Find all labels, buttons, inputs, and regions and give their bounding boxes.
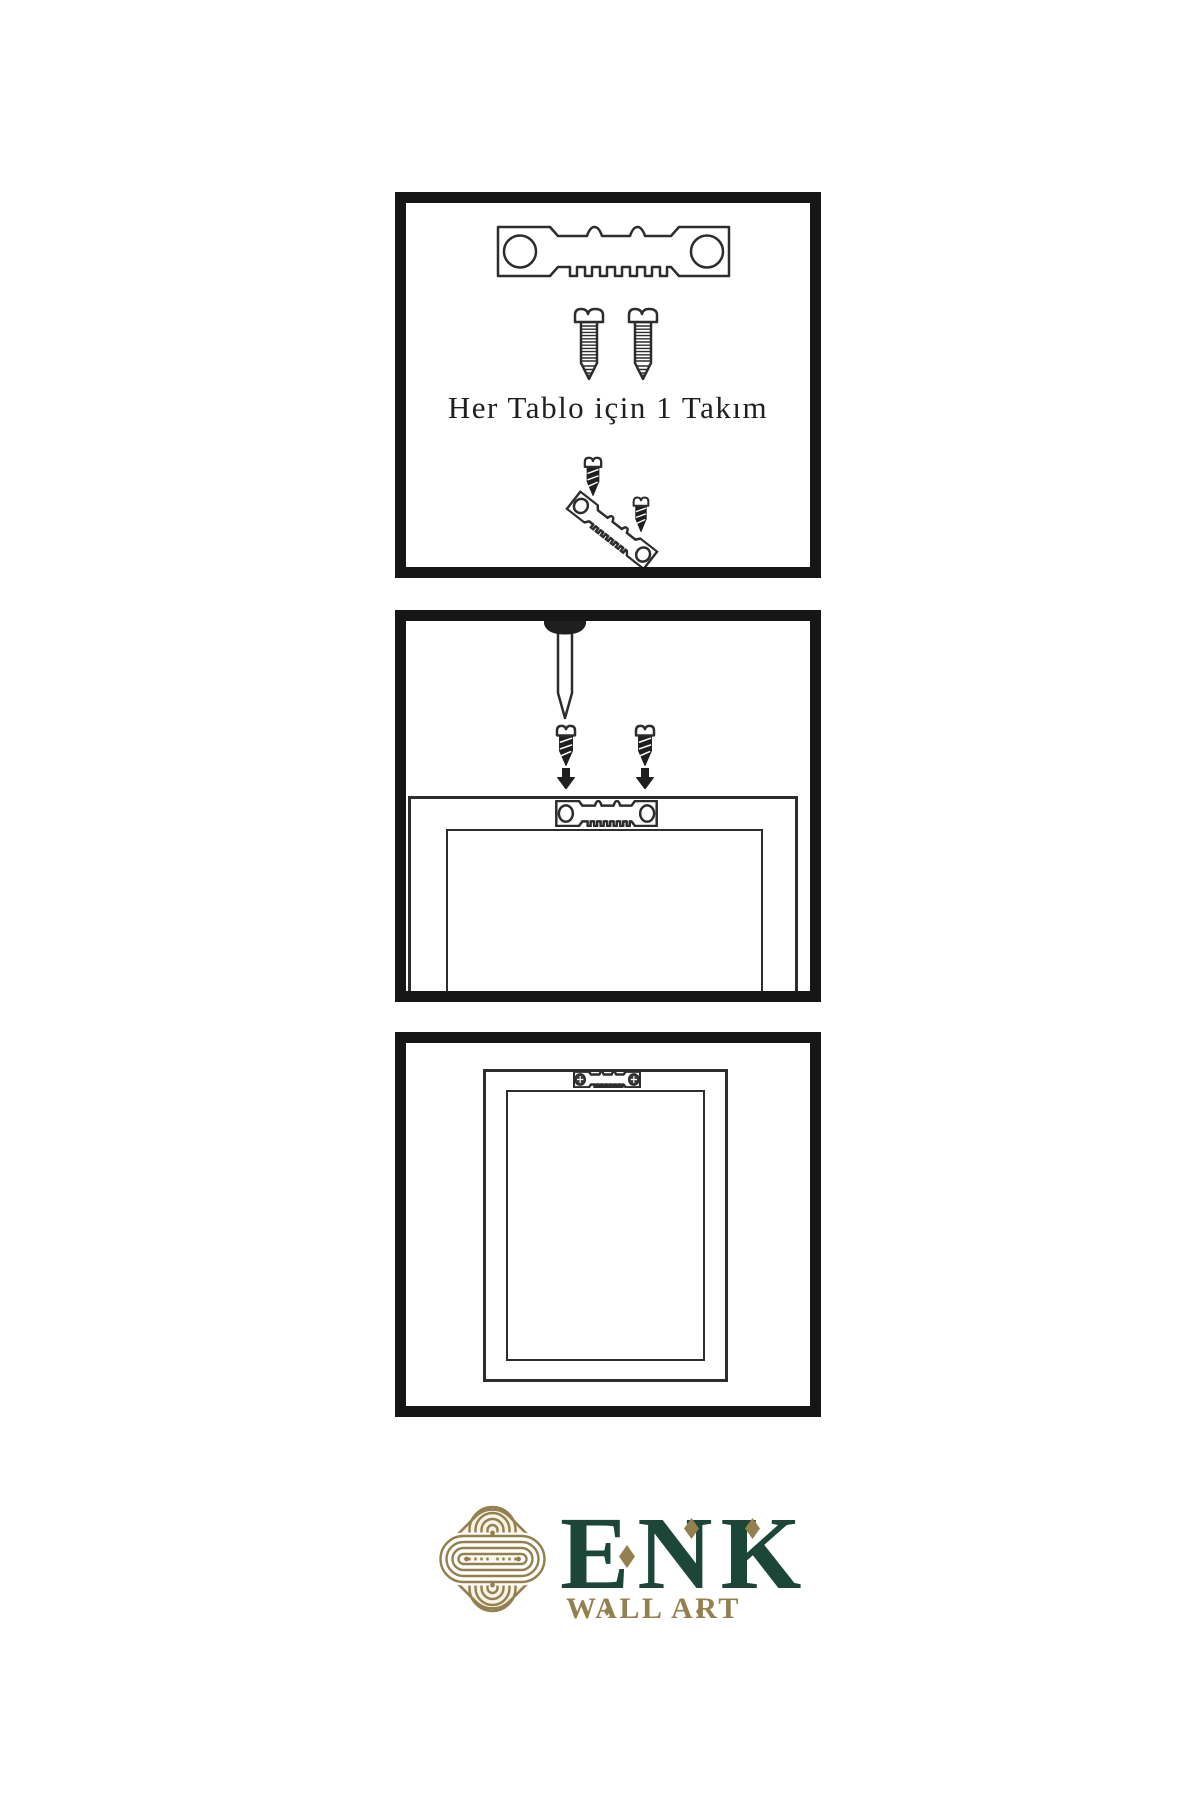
dark-screw-icon xyxy=(555,723,577,767)
phillips-screw-head-icon xyxy=(630,1075,639,1085)
step2-panel xyxy=(395,610,821,1002)
sawtooth-hanger-icon xyxy=(495,225,732,278)
down-arrow-icon xyxy=(557,768,575,789)
frame-back-inner-edge xyxy=(446,829,763,1002)
step3-panel xyxy=(395,1032,821,1417)
instruction-sheet: Her Tablo için 1 Takım xyxy=(0,0,1200,1800)
brand-name: ENK xyxy=(560,1502,809,1606)
step1-caption: Her Tablo için 1 Takım xyxy=(406,390,810,426)
brand-tagline: WALL ART xyxy=(566,1594,741,1624)
down-arrow-icon xyxy=(636,768,654,789)
knot-emblem-icon xyxy=(432,1488,553,1630)
step1-panel: Her Tablo için 1 Takım xyxy=(395,192,821,578)
wall-nail-icon xyxy=(544,621,586,721)
dark-screw-icon xyxy=(634,723,656,767)
dark-screw-icon xyxy=(583,455,603,497)
dark-screw-icon xyxy=(632,495,650,533)
phillips-screw-head-icon xyxy=(576,1075,585,1085)
frame-inner-edge xyxy=(506,1090,705,1361)
sawtooth-hanger-icon xyxy=(573,1071,641,1088)
screw-icon xyxy=(573,305,605,381)
screw-icon xyxy=(627,305,659,381)
sawtooth-hanger-icon xyxy=(555,800,658,827)
